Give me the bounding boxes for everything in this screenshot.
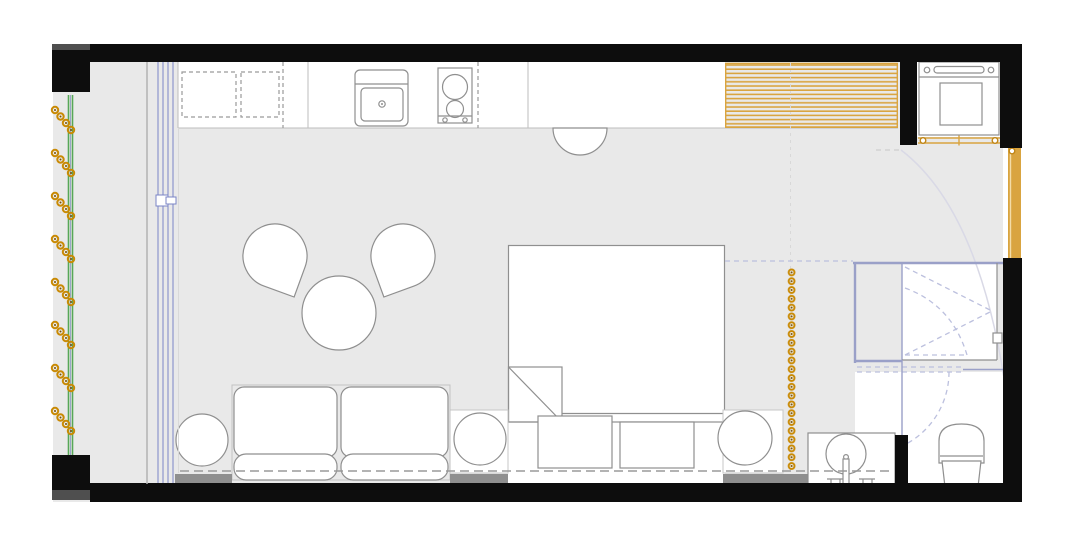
wall-top [90, 44, 1022, 62]
curtain-dots [788, 268, 796, 470]
side-table-center [454, 413, 506, 465]
wall-wc-stub [895, 435, 908, 487]
sleeping-area [508, 245, 725, 485]
shower-handle [993, 333, 1002, 343]
kitchen-sink [355, 70, 408, 126]
wall-right-upper [1000, 44, 1022, 148]
laundry-niche [917, 62, 1000, 146]
wall-niche-left [900, 62, 917, 145]
door-hinge [1009, 148, 1015, 154]
wall-right-lower [1003, 258, 1022, 487]
faucet [843, 459, 849, 487]
wardrobe [725, 63, 898, 128]
vanity [808, 433, 895, 489]
wall-bottom [90, 483, 1022, 502]
bedside-table-right [718, 411, 772, 465]
floor-cushion-left [538, 416, 612, 468]
floor-cushion-right [620, 422, 694, 468]
bed [509, 246, 725, 423]
balcony-railing [69, 95, 73, 455]
floor-plan [0, 0, 1077, 547]
toilet [939, 424, 984, 487]
cooktop [438, 68, 472, 123]
sofa [232, 385, 450, 480]
side-table-left [176, 414, 228, 466]
wall-corner-top-left [52, 44, 90, 92]
coffee-table [302, 276, 376, 350]
floor-plan-drawing [0, 0, 1077, 547]
shower-floor [902, 264, 997, 360]
